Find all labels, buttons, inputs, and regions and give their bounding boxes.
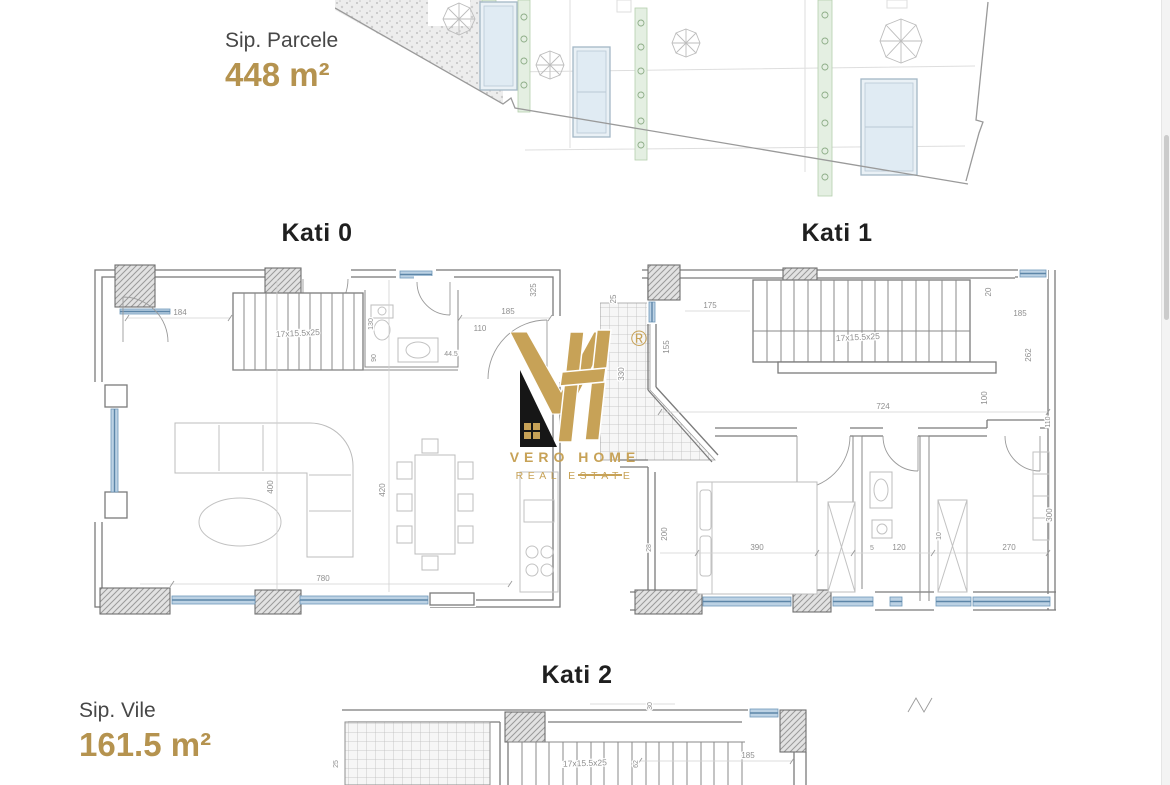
villa-area-value: 161.5 m² — [79, 726, 211, 764]
site-plan — [335, 0, 995, 205]
parcel-area-block: Sip. Parcele 448 m² — [225, 29, 338, 94]
dim-label: 100 — [980, 391, 989, 405]
dim-label: 200 — [660, 527, 669, 541]
kati1-plan: 25 175 155 330 20 185 262 100 724 17x15.… — [600, 262, 1080, 622]
dim-label: 390 — [750, 543, 764, 552]
sink-icon — [870, 472, 892, 508]
dim-label: 175 — [703, 301, 717, 310]
break-symbol — [908, 698, 932, 712]
kati2-title: Kati 2 — [497, 661, 657, 690]
parcel-area-value: 448 m² — [225, 56, 338, 94]
dim-label: 262 — [1024, 348, 1033, 362]
dim-label: 30 — [647, 702, 654, 710]
dim-label: 90 — [371, 354, 378, 362]
villa-area-label: Sip. Vile — [79, 699, 211, 723]
wardrobe — [828, 502, 855, 592]
dim-label: 44.5 — [444, 351, 458, 358]
villa-area-block: Sip. Vile 161.5 m² — [79, 699, 211, 764]
dim-label: 25 — [333, 760, 340, 768]
kati2-stairs — [508, 742, 745, 785]
shelf — [1033, 452, 1049, 540]
kati1-furniture — [697, 452, 1049, 594]
dim-label: 25 — [609, 294, 618, 303]
dim-label: 300 — [1045, 508, 1054, 522]
dim-label: 325 — [529, 283, 538, 297]
dim-label: 184 — [173, 308, 187, 317]
pool-symbols — [480, 2, 917, 175]
dim-label: 270 — [1002, 543, 1016, 552]
vh-monogram-icon — [510, 330, 611, 447]
kati1-stairs — [753, 280, 996, 373]
terrace-tiles — [345, 722, 490, 785]
floorplan-page: 184 17x15.5x25 130 90 110 44.5 185 325 4… — [0, 0, 1170, 785]
kati0-title: Kati 0 — [237, 219, 397, 248]
dim-label: 10 — [936, 532, 943, 540]
wardrobe — [938, 500, 967, 592]
dim-label: 110 — [1045, 416, 1052, 427]
dim-label: 155 — [662, 340, 671, 354]
registered-mark-icon: ® — [631, 326, 647, 351]
scrollbar-track[interactable] — [1161, 0, 1170, 785]
sink-icon — [398, 338, 438, 362]
dim-label: 185 — [501, 307, 515, 316]
dim-label: 420 — [378, 483, 387, 497]
parcel-area-label: Sip. Parcele — [225, 29, 338, 53]
dim-label: 400 — [266, 480, 275, 494]
dim-label: 120 — [892, 543, 906, 552]
scrollbar-thumb[interactable] — [1164, 135, 1169, 320]
kati2-plan: 17x15.5x25 185 30 62 25 — [330, 660, 990, 785]
logo-brand-text: VERO HOME — [510, 449, 641, 465]
kati0-plan: 184 17x15.5x25 130 90 110 44.5 185 325 4… — [80, 262, 565, 622]
kati1-title: Kati 1 — [757, 219, 917, 248]
gravel-texture — [335, 0, 503, 103]
dim-label: 130 — [368, 318, 375, 330]
dim-label: 62 — [633, 760, 640, 768]
dim-label: 20 — [984, 287, 993, 296]
gravel-notch — [428, 0, 470, 26]
kati2-walls — [342, 707, 806, 785]
dim-label: 5 — [870, 545, 874, 552]
toilet-icon — [872, 520, 892, 538]
dim-label: 185 — [1013, 309, 1027, 318]
stair-label: 17x15.5x25 — [563, 757, 608, 769]
hedge-strips — [482, 0, 832, 196]
bed — [697, 482, 817, 594]
kati1-doors — [797, 436, 1040, 489]
vero-home-logo: ® VERO HOME REAL ESTATE — [500, 320, 650, 492]
dim-label: 724 — [876, 402, 890, 411]
dim-label: 110 — [474, 324, 487, 333]
dim-label: 780 — [316, 574, 330, 583]
dim-label: 185 — [741, 751, 755, 760]
dim-label: 28 — [646, 544, 653, 552]
